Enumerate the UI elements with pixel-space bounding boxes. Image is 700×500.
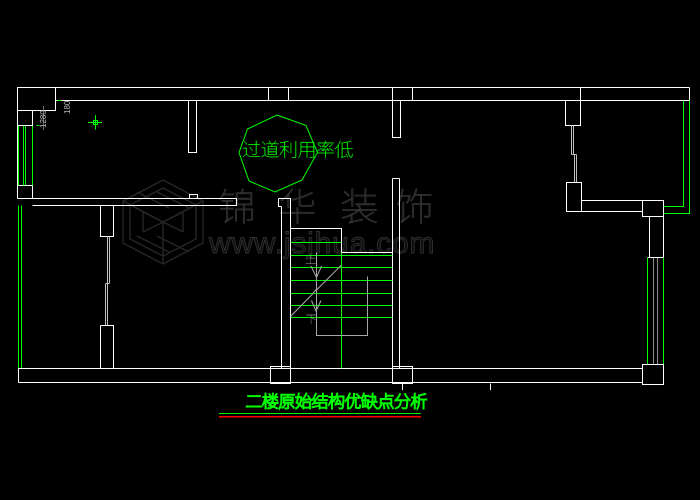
svg-text:1280: 1280 <box>39 110 48 128</box>
svg-text:180: 180 <box>63 100 72 114</box>
